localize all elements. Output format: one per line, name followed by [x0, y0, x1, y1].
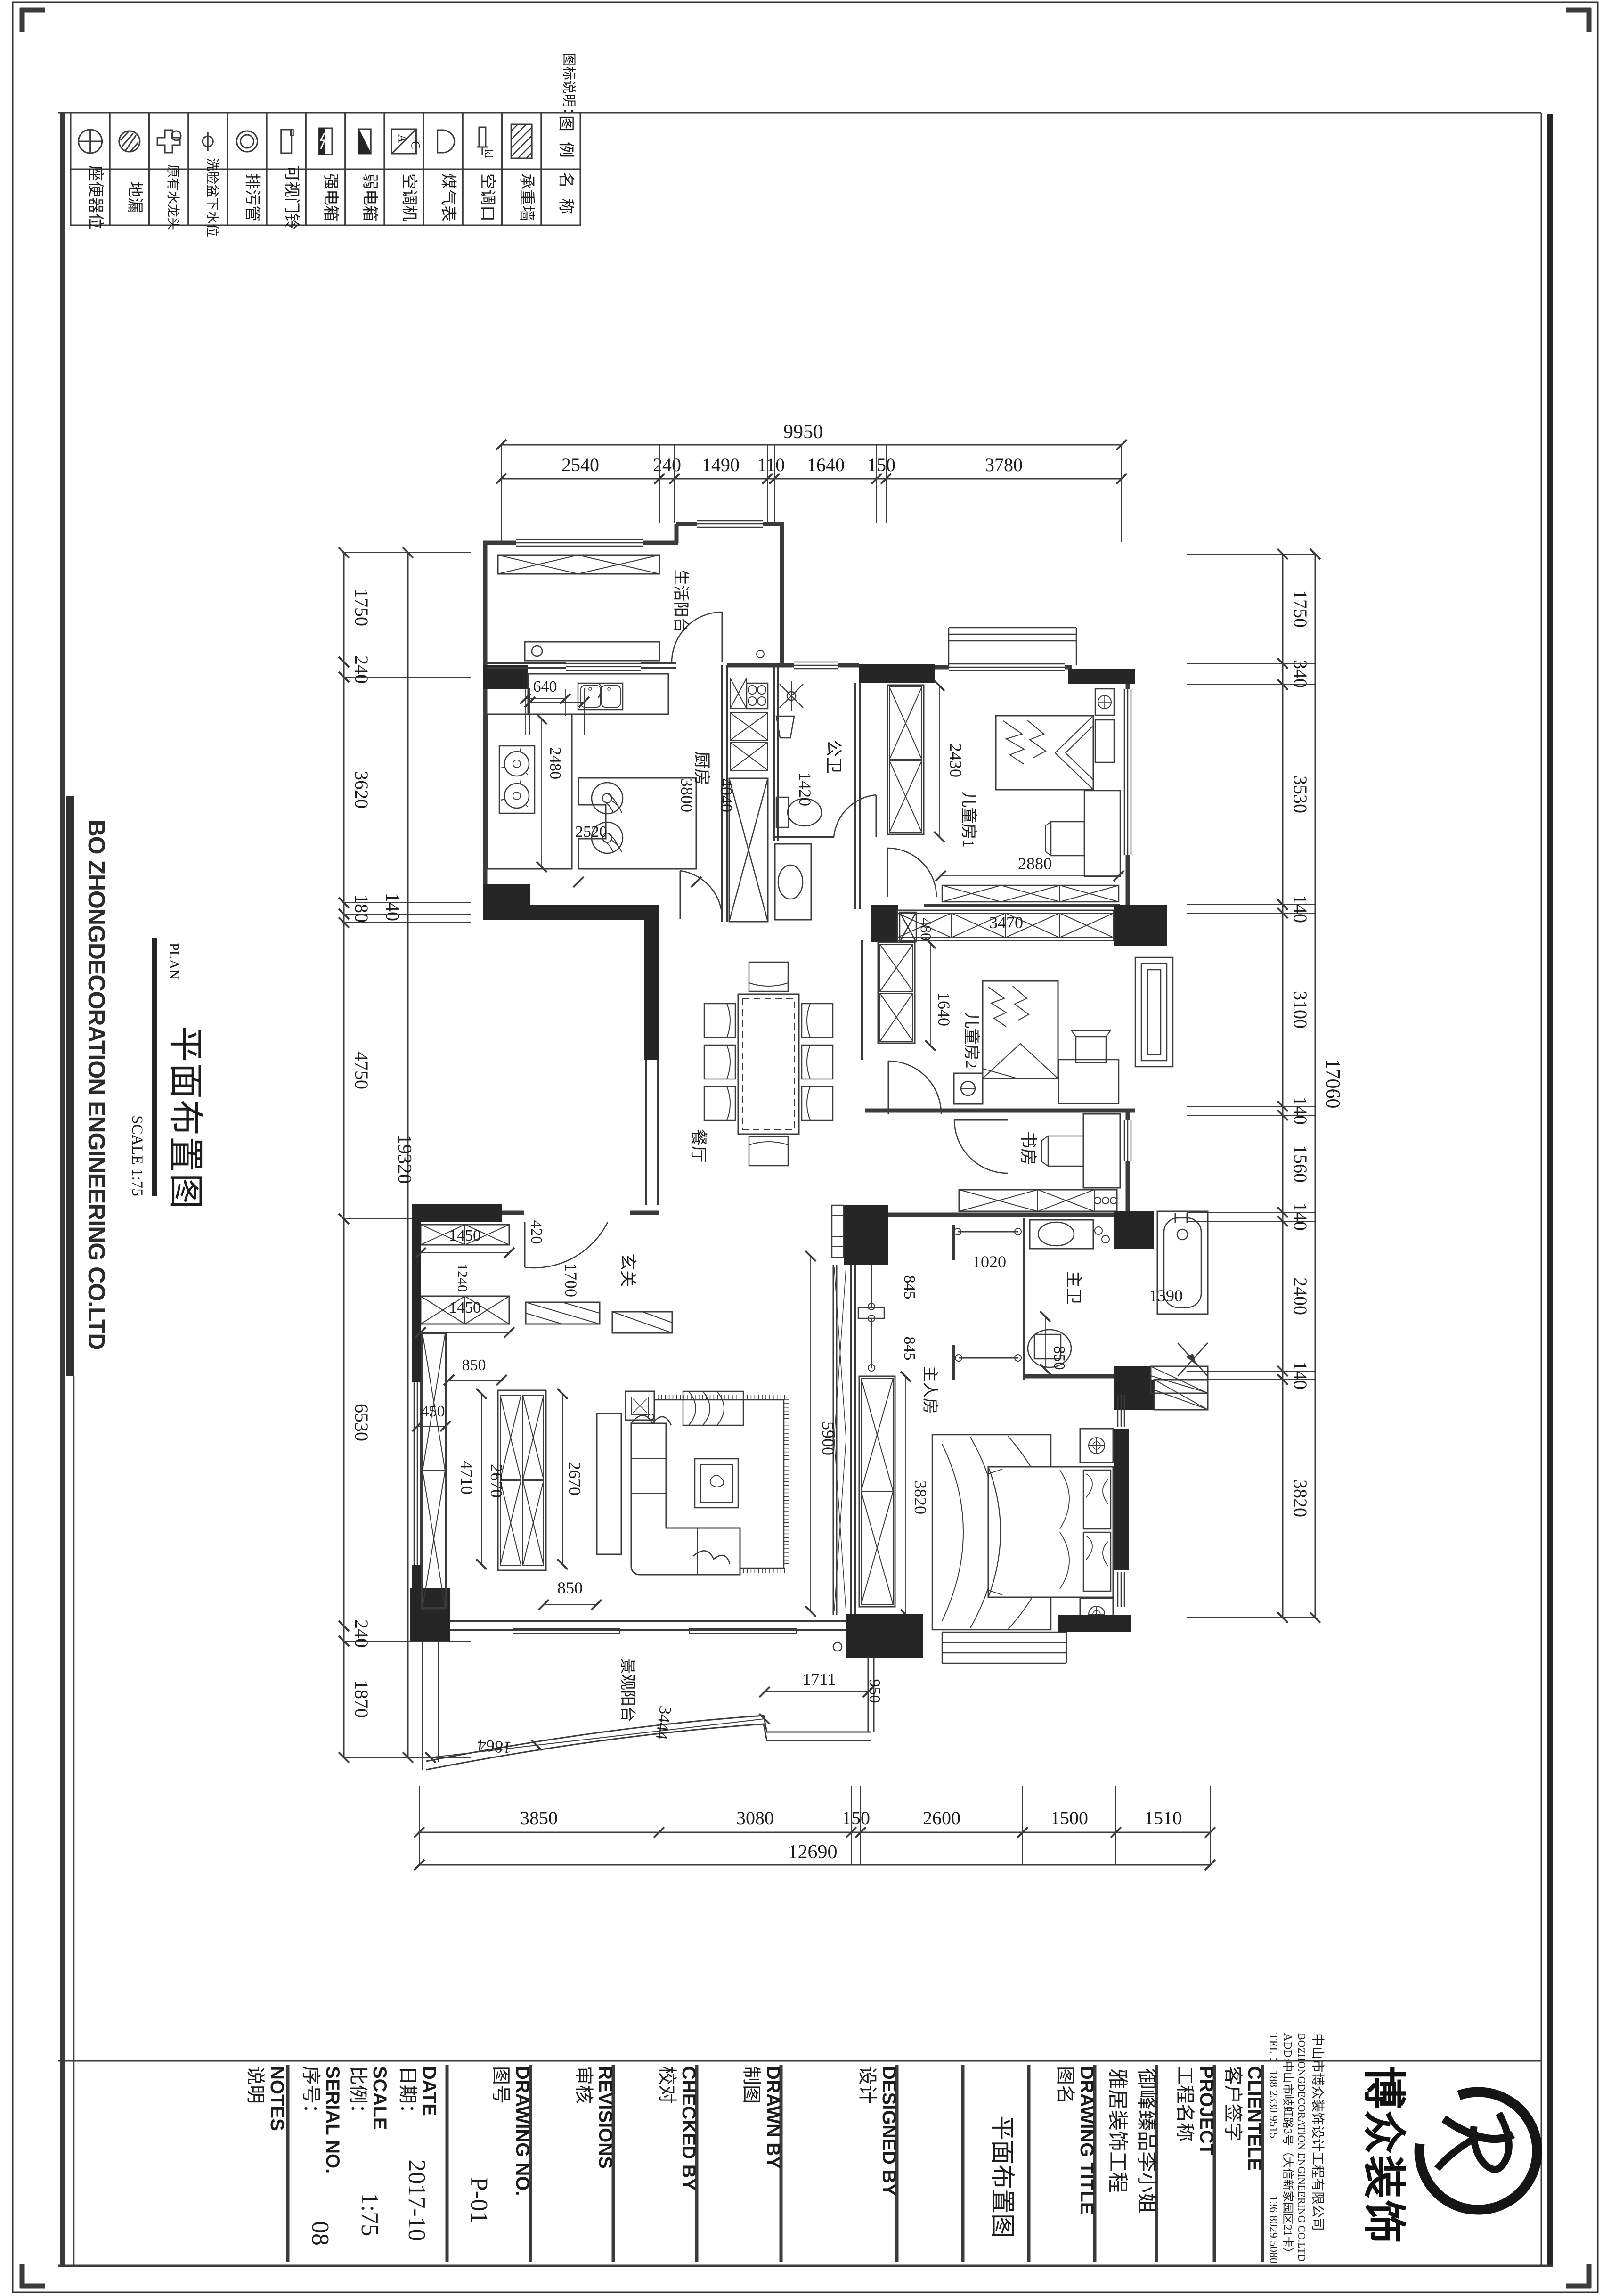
svg-text:1640: 1640 [807, 454, 845, 475]
svg-text:1500: 1500 [1050, 1807, 1088, 1829]
svg-text:640: 640 [533, 678, 557, 695]
svg-text:4710: 4710 [457, 1461, 476, 1495]
svg-text:150: 150 [867, 454, 895, 475]
svg-text:845: 845 [901, 1337, 918, 1361]
svg-text:850: 850 [462, 1356, 486, 1374]
svg-text:饰: 饰 [1359, 2200, 1408, 2243]
svg-text:1450: 1450 [449, 1227, 481, 1244]
svg-text:排污管: 排污管 [244, 173, 261, 221]
svg-text:3100: 3100 [1290, 991, 1311, 1029]
svg-text:1240: 1240 [455, 1264, 470, 1292]
svg-text:1750: 1750 [1290, 590, 1311, 628]
svg-text:地漏: 地漏 [126, 181, 144, 213]
svg-text:150: 150 [842, 1807, 870, 1829]
svg-text:SERIAL NO.: SERIAL NO. [322, 2066, 343, 2173]
svg-text:客户签字: 客户签字 [1222, 2066, 1244, 2141]
svg-text:比例：: 比例： [348, 2066, 369, 2123]
svg-text:可视门铃: 可视门铃 [283, 165, 301, 229]
svg-text:2600: 2600 [923, 1807, 960, 1829]
svg-text:说明: 说明 [245, 2066, 266, 2104]
svg-text:6530: 6530 [351, 1404, 372, 1441]
svg-text:1640: 1640 [935, 992, 953, 1026]
svg-text:ADD:中山市岐虹路3号（大信新家园区21卡）: ADD:中山市岐虹路3号（大信新家园区21卡） [1281, 2033, 1294, 2259]
svg-text:3820: 3820 [911, 1480, 930, 1514]
svg-text:TEL ： 188 2330 9515: TEL ： 188 2330 9515 [1267, 2033, 1279, 2138]
svg-text:PLAN: PLAN [166, 943, 182, 980]
svg-text:450: 450 [421, 1403, 445, 1420]
svg-text:平面布置图: 平面布置图 [165, 1026, 205, 1210]
svg-text:240: 240 [351, 1619, 372, 1648]
svg-text:DATE: DATE [419, 2066, 439, 2116]
svg-text:生活阳台: 生活阳台 [672, 569, 690, 633]
svg-text:CHECKED BY: CHECKED BY [678, 2066, 699, 2191]
svg-text:1510: 1510 [1144, 1807, 1182, 1829]
svg-text:SCALE 1:75: SCALE 1:75 [129, 1115, 146, 1196]
svg-text:DESIGNED BY: DESIGNED BY [879, 2066, 899, 2196]
svg-text:DRAWING NO.: DRAWING NO. [512, 2066, 533, 2196]
svg-text:4040: 4040 [717, 778, 736, 812]
svg-text:1450: 1450 [449, 1299, 481, 1316]
svg-text:2670: 2670 [565, 1462, 584, 1495]
svg-text:雅居装饰工程: 雅居装饰工程 [1106, 2068, 1129, 2193]
svg-text:1750: 1750 [351, 588, 372, 626]
svg-text:工程名称: 工程名称 [1174, 2066, 1196, 2141]
svg-text:名: 名 [557, 172, 575, 188]
svg-text:180: 180 [351, 894, 372, 923]
svg-text:空调口: 空调口 [479, 173, 496, 221]
svg-text:中山市博众装饰设计工程有限公司: 中山市博众装饰设计工程有限公司 [1310, 2033, 1325, 2231]
svg-text:1560: 1560 [1290, 1145, 1311, 1183]
svg-text:1864: 1864 [477, 1735, 513, 1757]
svg-text:kl: kl [482, 149, 495, 158]
svg-text:12690: 12690 [788, 1841, 838, 1863]
svg-text:图号: 图号 [490, 2066, 512, 2104]
svg-text:C: C [408, 141, 422, 149]
svg-text:845: 845 [901, 1275, 918, 1299]
svg-text:称: 称 [557, 198, 574, 214]
svg-text:5900: 5900 [819, 1422, 838, 1455]
svg-text:140: 140 [1290, 1202, 1311, 1231]
svg-text:240: 240 [351, 655, 372, 684]
svg-text:140: 140 [1290, 1096, 1311, 1125]
svg-text:2670: 2670 [487, 1464, 506, 1498]
svg-text:校对: 校对 [657, 2066, 678, 2104]
svg-text:2880: 2880 [1018, 854, 1052, 873]
svg-text:承重墙: 承重墙 [518, 173, 536, 221]
svg-text:240: 240 [653, 454, 681, 475]
svg-text:3780: 3780 [985, 454, 1023, 475]
svg-text:儿童房2: 儿童房2 [962, 1013, 980, 1069]
svg-text:136 8029 5080: 136 8029 5080 [1267, 2196, 1279, 2263]
svg-text:洗脸盆下水位: 洗脸盆下水位 [204, 158, 220, 237]
svg-text:1711: 1711 [803, 1670, 836, 1689]
svg-text:制图: 制图 [741, 2066, 762, 2104]
svg-text:19320: 19320 [393, 1135, 415, 1184]
svg-text:140: 140 [382, 893, 403, 921]
svg-text:REVISIONS: REVISIONS [595, 2066, 616, 2169]
svg-text:SCALE: SCALE [369, 2066, 390, 2130]
svg-text:850: 850 [557, 1578, 583, 1597]
svg-text:A: A [395, 134, 409, 143]
svg-text:1020: 1020 [972, 1252, 1006, 1271]
svg-text:BOZHONGDECORATION ENGINEERING: BOZHONGDECORATION ENGINEERING CO.LTD [1296, 2033, 1308, 2262]
svg-text:2520: 2520 [575, 823, 607, 841]
svg-text:博: 博 [1359, 2066, 1408, 2109]
svg-text:CLIENTELE: CLIENTELE [1244, 2066, 1265, 2171]
svg-text:3530: 3530 [1290, 776, 1311, 813]
svg-text:强电箱: 强电箱 [322, 173, 340, 221]
svg-text:主人房: 主人房 [921, 1366, 939, 1414]
svg-text:140: 140 [1290, 1361, 1311, 1389]
svg-text:弱电箱: 弱电箱 [361, 173, 379, 221]
svg-text:设计: 设计 [857, 2066, 878, 2104]
svg-text:2540: 2540 [561, 454, 599, 475]
svg-text:420: 420 [528, 1220, 545, 1244]
svg-text:3470: 3470 [989, 913, 1023, 932]
svg-text:2480: 2480 [546, 747, 564, 779]
svg-text:装: 装 [1359, 2155, 1408, 2198]
svg-text:2400: 2400 [1290, 1277, 1311, 1315]
svg-text:1390: 1390 [1149, 1286, 1183, 1305]
svg-text:1700: 1700 [561, 1263, 580, 1297]
svg-text:众: 众 [1359, 2110, 1408, 2154]
svg-text:餐厅: 餐厅 [689, 1129, 708, 1163]
svg-text:9950: 9950 [783, 421, 823, 443]
svg-text:140: 140 [1290, 895, 1311, 923]
svg-text:P-01: P-01 [465, 2177, 492, 2223]
svg-text:主卫: 主卫 [1064, 1271, 1083, 1305]
svg-text:儿童房1: 儿童房1 [960, 792, 977, 848]
svg-text:1870: 1870 [351, 1680, 372, 1718]
svg-text:850: 850 [1050, 1346, 1068, 1370]
svg-text:日期：: 日期： [397, 2066, 418, 2123]
svg-text:平面布置图: 平面布置图 [988, 2116, 1015, 2238]
svg-text:BO ZHONGDECORATION ENGINEERING: BO ZHONGDECORATION ENGINEERING CO.LTD [83, 819, 110, 1349]
svg-text:1:75: 1:75 [356, 2193, 383, 2236]
svg-text:审核: 审核 [573, 2066, 594, 2104]
svg-text:座便器位: 座便器位 [87, 165, 105, 229]
svg-text:御峰臻品李小姐: 御峰臻品李小姐 [1135, 2068, 1158, 2214]
svg-text:3820: 3820 [1290, 1479, 1311, 1517]
svg-text:08: 08 [307, 2221, 334, 2246]
svg-text:DRAWN BY: DRAWN BY [763, 2066, 783, 2169]
svg-text:公卫: 公卫 [824, 740, 843, 774]
svg-text:1490: 1490 [702, 454, 740, 475]
svg-text:PROJECT: PROJECT [1196, 2066, 1217, 2155]
svg-text:例: 例 [557, 142, 574, 158]
svg-text:空调机: 空调机 [400, 173, 418, 221]
svg-text:4750: 4750 [351, 1052, 372, 1089]
svg-text:3850: 3850 [520, 1807, 558, 1829]
svg-text:17060: 17060 [1322, 1059, 1343, 1109]
svg-text:110: 110 [757, 454, 785, 475]
svg-text:玄关: 玄关 [618, 1253, 637, 1287]
svg-text:950: 950 [866, 1679, 883, 1703]
svg-text:1420: 1420 [796, 772, 814, 806]
svg-text:煤气表: 煤气表 [439, 173, 457, 221]
svg-text:图名: 图名 [1055, 2066, 1076, 2104]
svg-text:图标说明：: 图标说明： [561, 53, 577, 121]
svg-text:NOTES: NOTES [267, 2066, 287, 2131]
svg-text:480: 480 [918, 918, 935, 940]
svg-text:3800: 3800 [677, 778, 696, 812]
svg-text:2017-10: 2017-10 [403, 2159, 430, 2241]
svg-text:序号：: 序号： [301, 2066, 322, 2123]
svg-text:2430: 2430 [946, 744, 965, 777]
svg-text:3080: 3080 [736, 1807, 774, 1829]
svg-text:原有水龙头: 原有水龙头 [165, 164, 180, 230]
svg-text:景观阳台: 景观阳台 [618, 1658, 636, 1722]
svg-text:3620: 3620 [351, 771, 372, 809]
svg-text:书房: 书房 [1019, 1131, 1038, 1165]
svg-text:DRAWING TITLE: DRAWING TITLE [1076, 2066, 1097, 2215]
